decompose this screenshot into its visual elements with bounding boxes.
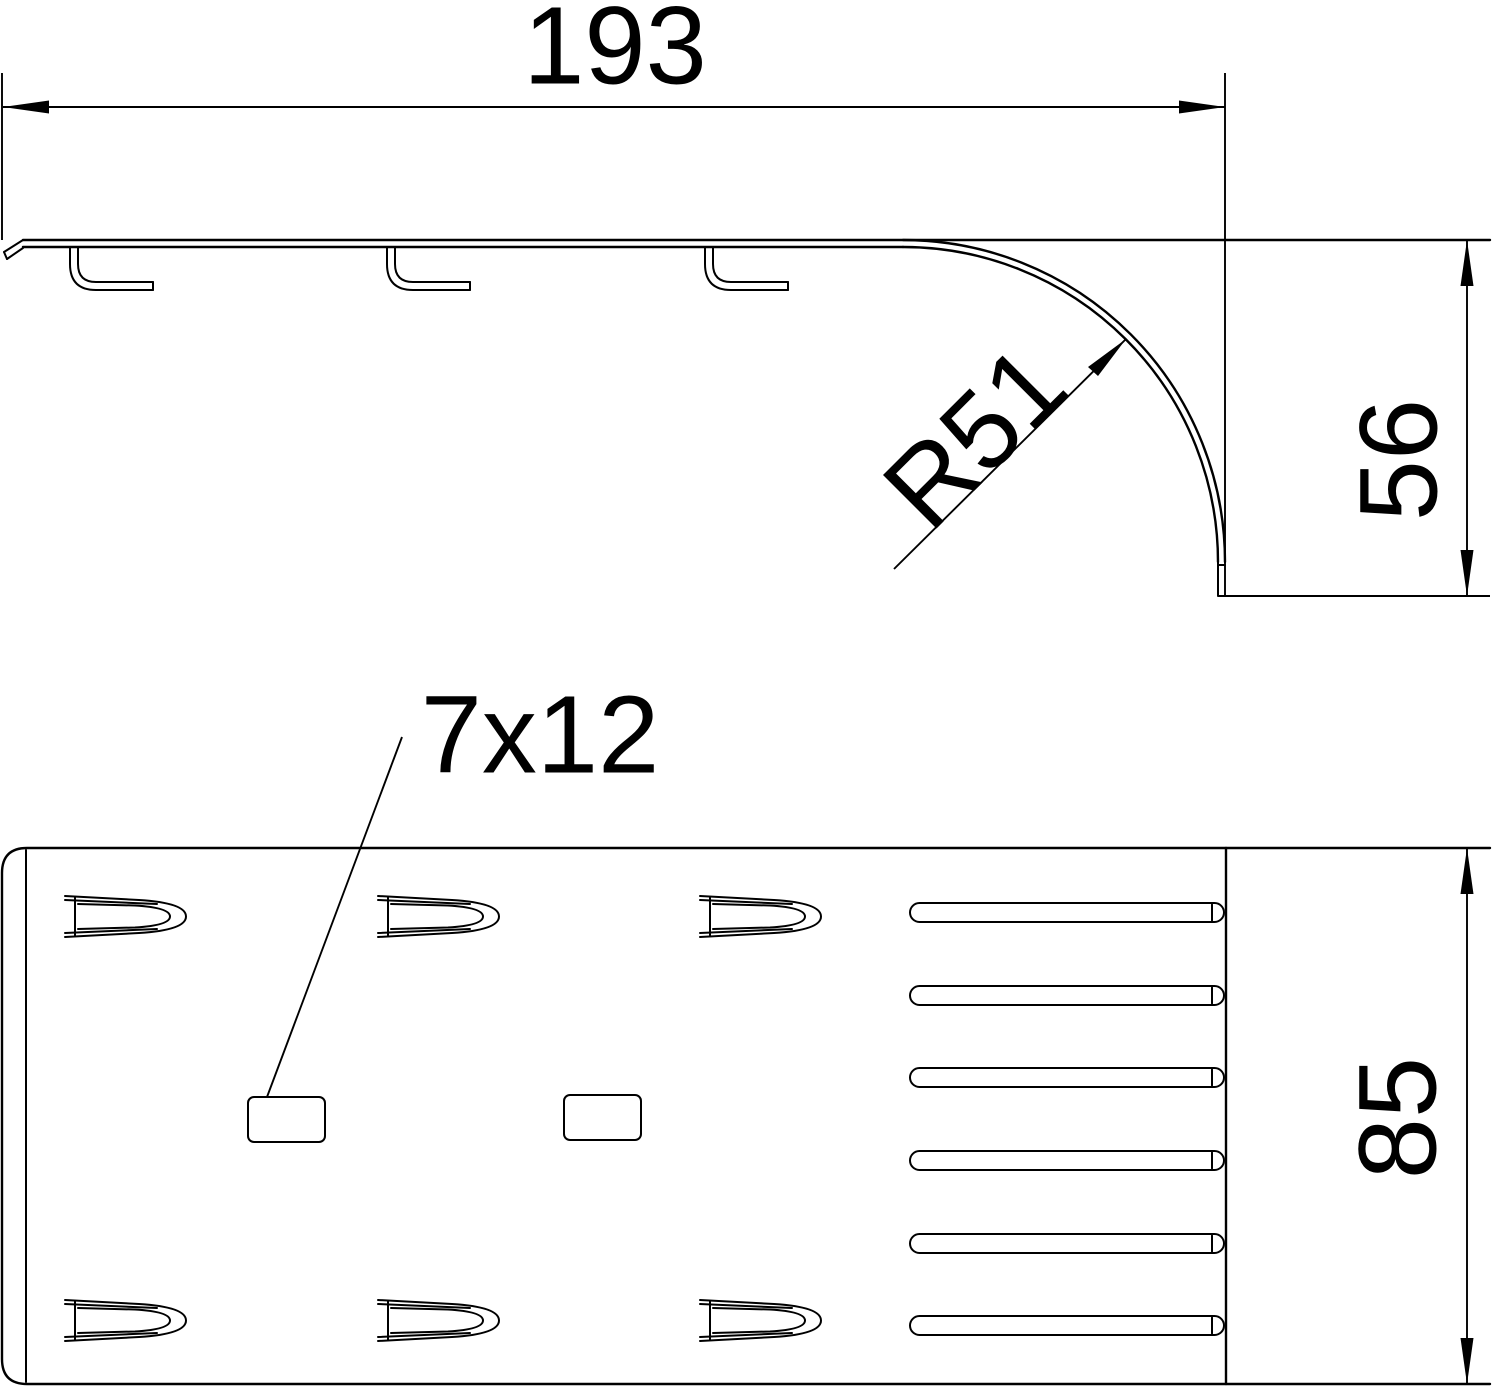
arrowhead-right	[1179, 101, 1225, 114]
dimension-length-193: 193	[2, 0, 1225, 596]
tongues-layer	[65, 896, 821, 1341]
radius-dimension-value: R51	[860, 322, 1090, 552]
tongue-r2-2	[378, 1300, 499, 1341]
slot-size-value: 7x12	[421, 674, 660, 797]
arrowhead-up	[1461, 848, 1474, 894]
drain-slot-2	[910, 986, 1224, 1005]
dimension-width-85: 85	[1337, 848, 1474, 1384]
arrowhead-down	[1461, 1338, 1474, 1384]
retaining-hook-3	[705, 247, 788, 290]
dimension-radius-r51: R51	[860, 322, 1126, 569]
drain-slot-5	[910, 1234, 1224, 1253]
length-dimension-value: 193	[523, 0, 707, 108]
dimension-height-56: 56	[1218, 240, 1490, 596]
radius-arrowhead	[1088, 339, 1126, 376]
arrowhead-up	[1461, 240, 1474, 286]
plan-view: 7x12 85	[2, 674, 1490, 1385]
slot-leader-line	[267, 737, 402, 1097]
retaining-hook-2	[387, 247, 470, 290]
rect-slots-layer	[248, 1095, 641, 1142]
hooks-layer	[70, 247, 788, 290]
tongue-r1-1	[65, 896, 186, 937]
drain-slots-layer	[910, 903, 1224, 1335]
rect-slot-7x12-1	[248, 1097, 325, 1142]
slot-size-callout: 7x12	[267, 674, 659, 1098]
tongue-r1-2	[378, 896, 499, 937]
tongue-r2-1	[65, 1300, 186, 1341]
drain-slot-4	[910, 1151, 1224, 1170]
drain-slot-3	[910, 1068, 1224, 1087]
drain-slot-1	[910, 903, 1224, 922]
height-dimension-value: 56	[1338, 399, 1461, 521]
left-lip	[4, 240, 23, 259]
tongue-r2-3	[700, 1300, 821, 1341]
retaining-hook-1	[70, 247, 153, 290]
width-dimension-value: 85	[1337, 1057, 1460, 1179]
arrowhead-left	[3, 101, 49, 114]
technical-drawing-page: 193 56 R51 7x12	[0, 0, 1500, 1389]
rect-slot-7x12-2	[564, 1095, 641, 1140]
drain-slot-6	[910, 1316, 1224, 1335]
side-view: 193 56 R51	[2, 0, 1490, 596]
tongue-r1-3	[700, 896, 821, 937]
drawing-canvas: 193 56 R51 7x12	[0, 0, 1500, 1389]
arrowhead-down	[1461, 550, 1474, 596]
